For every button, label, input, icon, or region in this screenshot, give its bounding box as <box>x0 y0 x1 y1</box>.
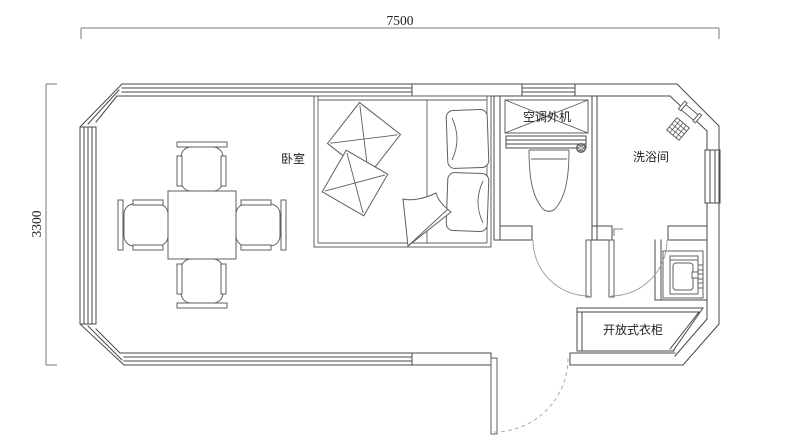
shower-head <box>667 101 702 140</box>
chair-right <box>236 200 286 250</box>
chair-left <box>118 200 168 250</box>
bedroom-label: 卧室 <box>281 151 305 166</box>
dimension-top-label: 7500 <box>387 13 414 28</box>
bathroom-label: 洗浴间 <box>633 150 669 164</box>
floor-drain <box>577 144 586 153</box>
open-wardrobe: 开放式衣柜 <box>577 308 703 351</box>
double-bed <box>314 96 491 247</box>
entrance-door <box>491 358 568 434</box>
pillow-top <box>446 109 489 168</box>
pillow-bottom <box>446 172 489 231</box>
chair-top <box>177 142 227 191</box>
floor-plan: 7500 3300 <box>0 0 800 448</box>
window-top-center <box>522 84 575 96</box>
bathroom-door <box>609 229 667 297</box>
wash-basin <box>655 240 707 300</box>
dining-set <box>118 142 286 308</box>
chair-bottom <box>177 259 227 308</box>
dining-table <box>168 191 236 259</box>
window-right <box>705 150 720 203</box>
ac-outdoor-unit: 空调外机 <box>505 100 588 148</box>
window-top-left <box>122 84 412 96</box>
toilet <box>529 150 569 211</box>
window-bottom <box>124 353 412 365</box>
dimension-left-label: 3300 <box>29 210 44 237</box>
ac-unit-label: 空调外机 <box>523 110 571 124</box>
dimension-top: 7500 <box>81 13 719 39</box>
dimension-left: 3300 <box>29 84 57 365</box>
window-left <box>80 127 96 324</box>
wardrobe-label: 开放式衣柜 <box>603 322 663 337</box>
toilet-door <box>533 240 591 297</box>
